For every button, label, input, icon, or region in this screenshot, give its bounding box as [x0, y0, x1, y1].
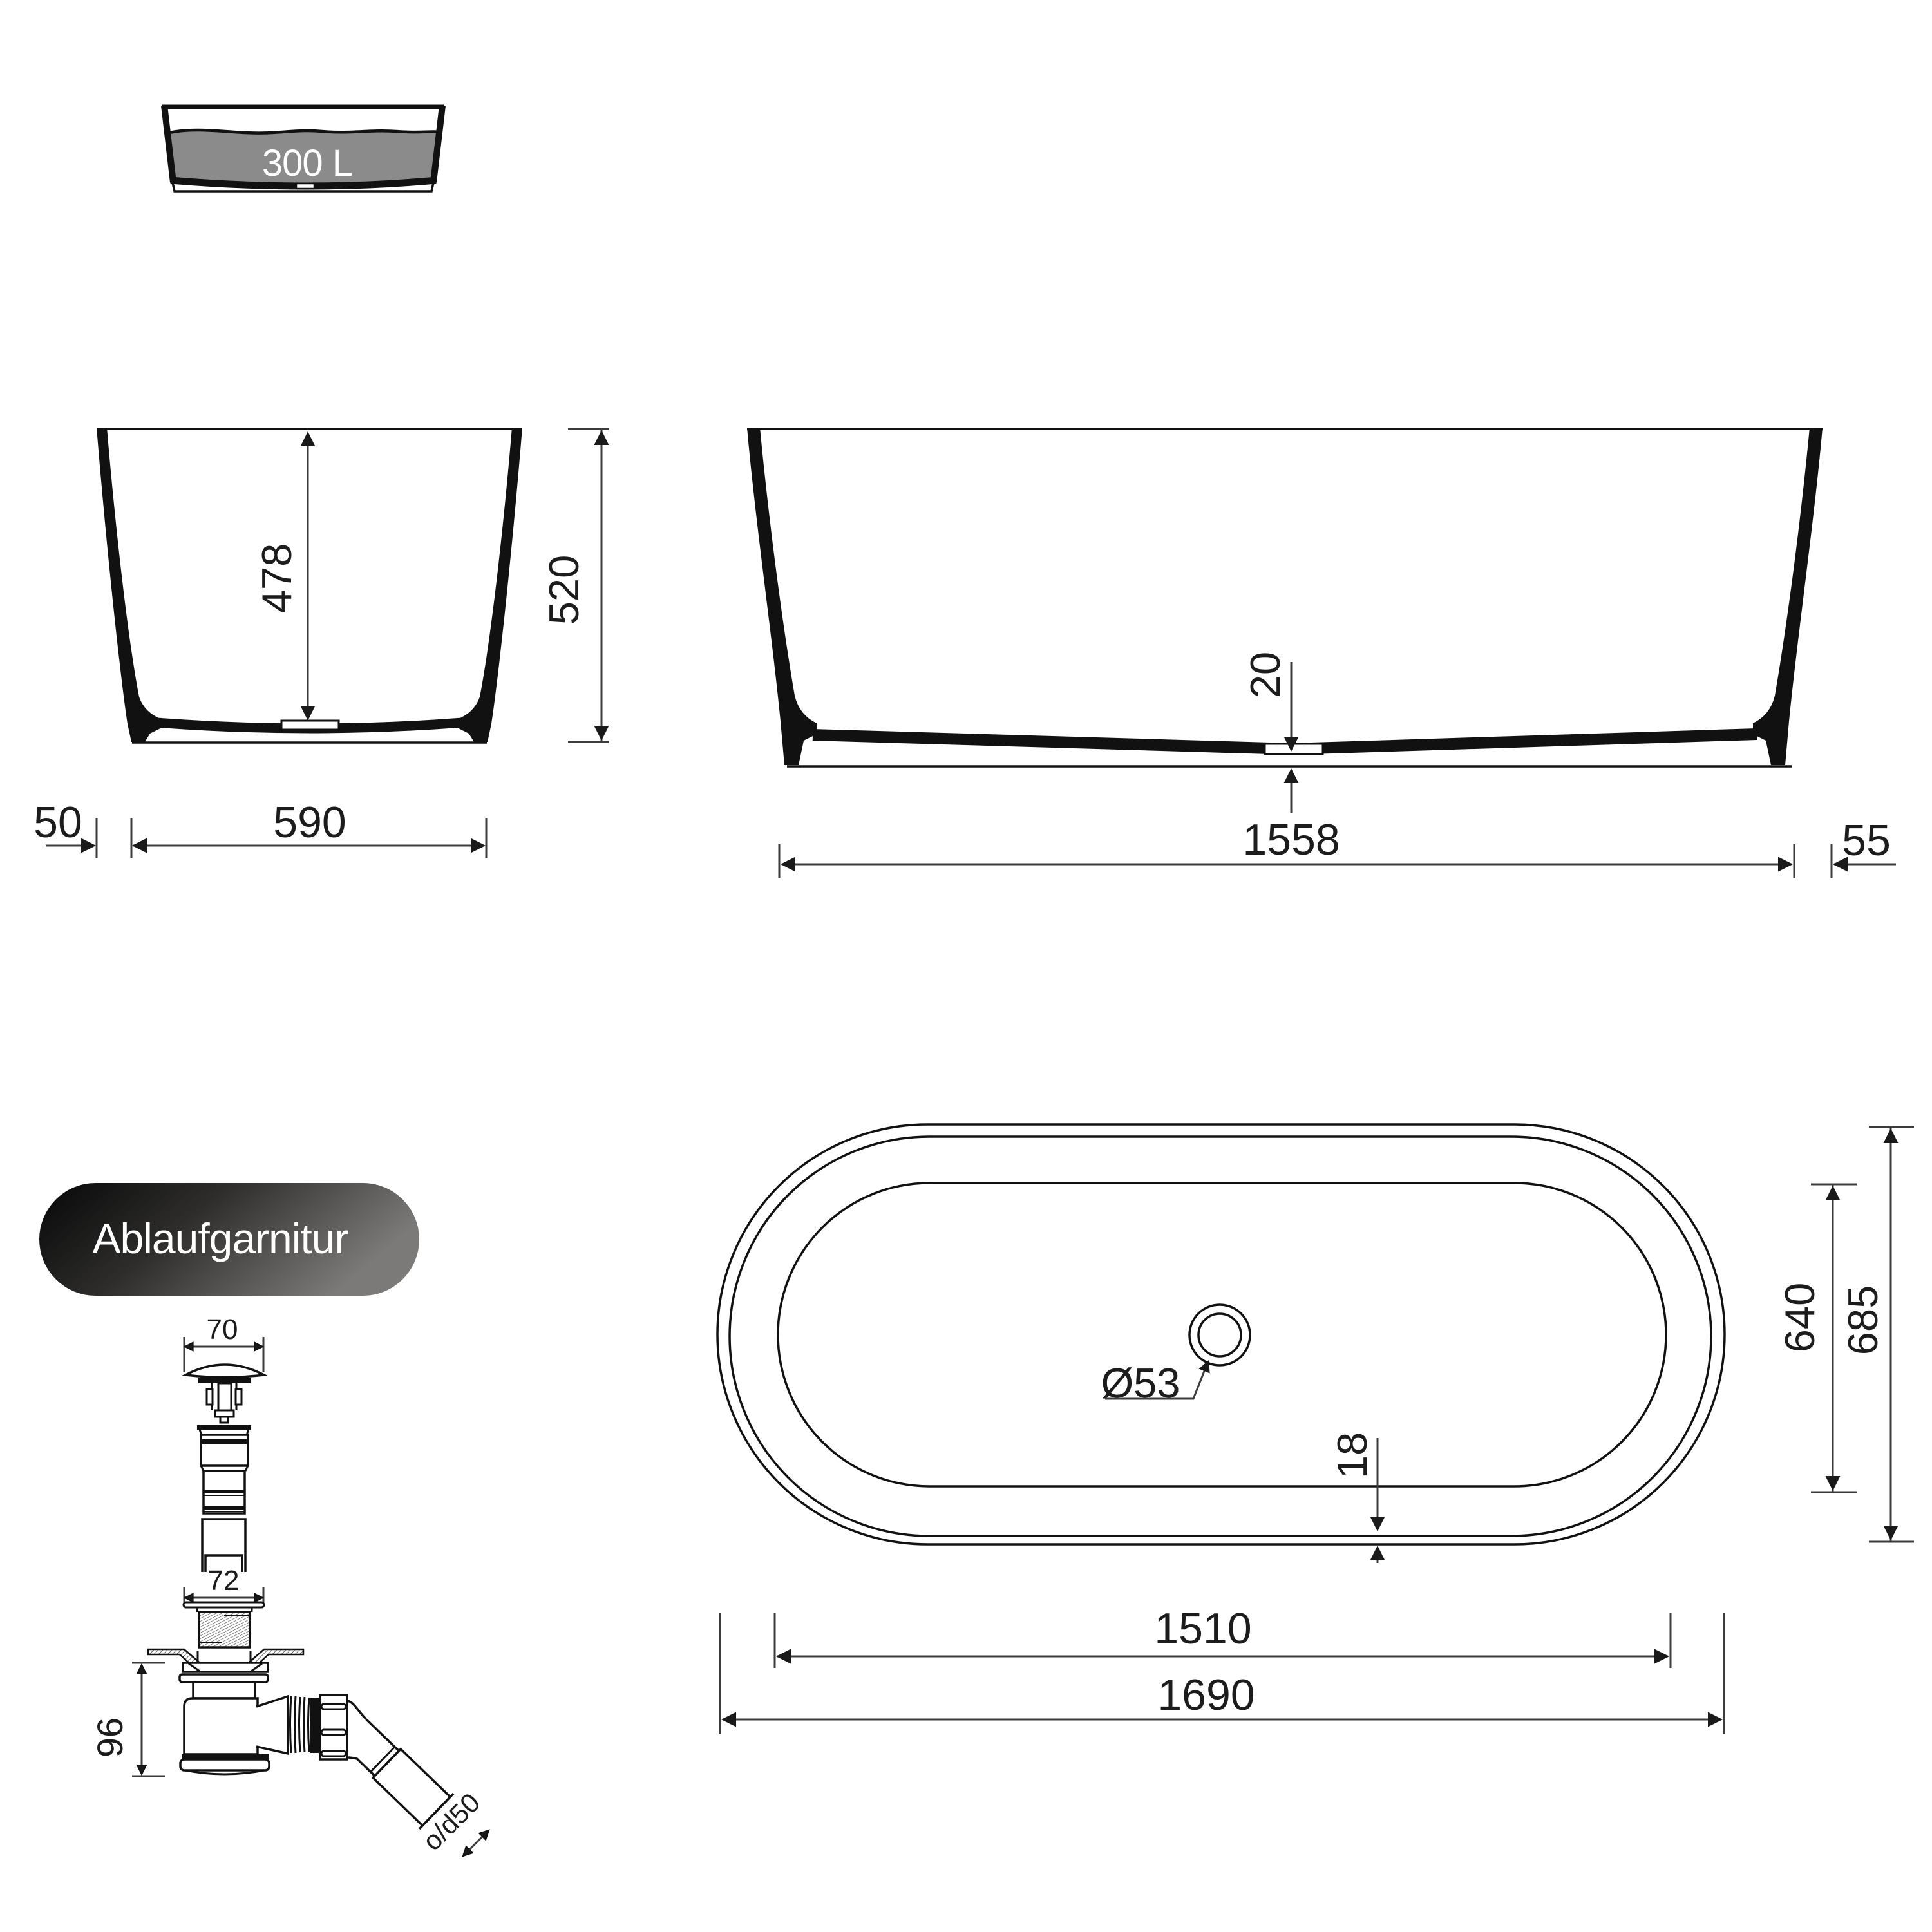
svg-text:96: 96 [90, 1718, 130, 1757]
svg-text:640: 640 [1776, 1283, 1823, 1352]
svg-text:18: 18 [1329, 1432, 1376, 1479]
svg-text:72: 72 [208, 1565, 240, 1596]
svg-text:1510: 1510 [1154, 1604, 1251, 1653]
svg-text:20: 20 [1242, 652, 1289, 698]
svg-text:1690: 1690 [1157, 1671, 1255, 1719]
svg-text:590: 590 [273, 798, 346, 847]
svg-text:55: 55 [1842, 816, 1891, 865]
svg-text:50: 50 [33, 798, 82, 847]
svg-text:300 L: 300 L [262, 142, 352, 184]
svg-text:Ablaufgarnitur: Ablaufgarnitur [93, 1215, 348, 1262]
svg-text:685: 685 [1839, 1285, 1886, 1355]
svg-text:1558: 1558 [1242, 815, 1340, 864]
svg-text:520: 520 [540, 555, 587, 625]
svg-text:478: 478 [253, 544, 300, 613]
svg-text:70: 70 [207, 1314, 238, 1345]
